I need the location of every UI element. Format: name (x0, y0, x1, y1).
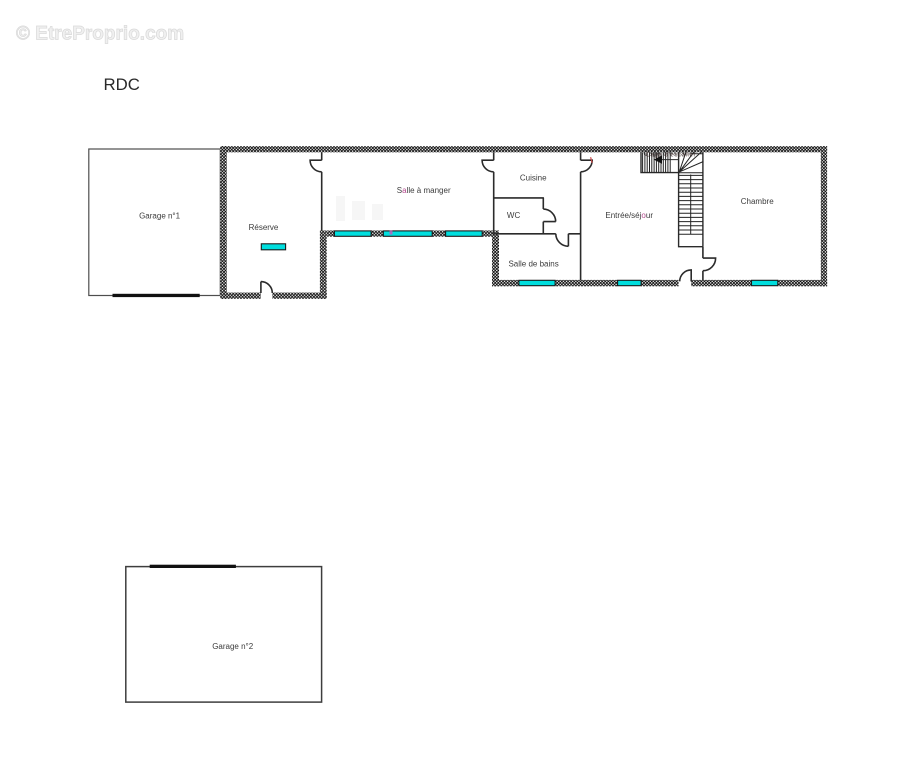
svg-text:Chambre: Chambre (741, 197, 774, 206)
svg-text:© EtreProprio.com: © EtreProprio.com (16, 24, 184, 45)
svg-text:Garage n°2: Garage n°2 (212, 642, 254, 651)
svg-text:Cuisine: Cuisine (520, 174, 547, 183)
svg-text:Salle à manger: Salle à manger (397, 186, 451, 195)
svg-text:Garage n°1: Garage n°1 (139, 211, 181, 220)
svg-text:Entrée/séjour: Entrée/séjour (605, 211, 653, 220)
svg-text:RDC: RDC (104, 75, 140, 94)
svg-text:Réserve: Réserve (249, 223, 279, 232)
svg-text:Salle de bains: Salle de bains (508, 259, 558, 268)
svg-text:WC: WC (507, 211, 521, 220)
svg-text:Cage d'escalier: Cage d'escalier (646, 151, 696, 158)
